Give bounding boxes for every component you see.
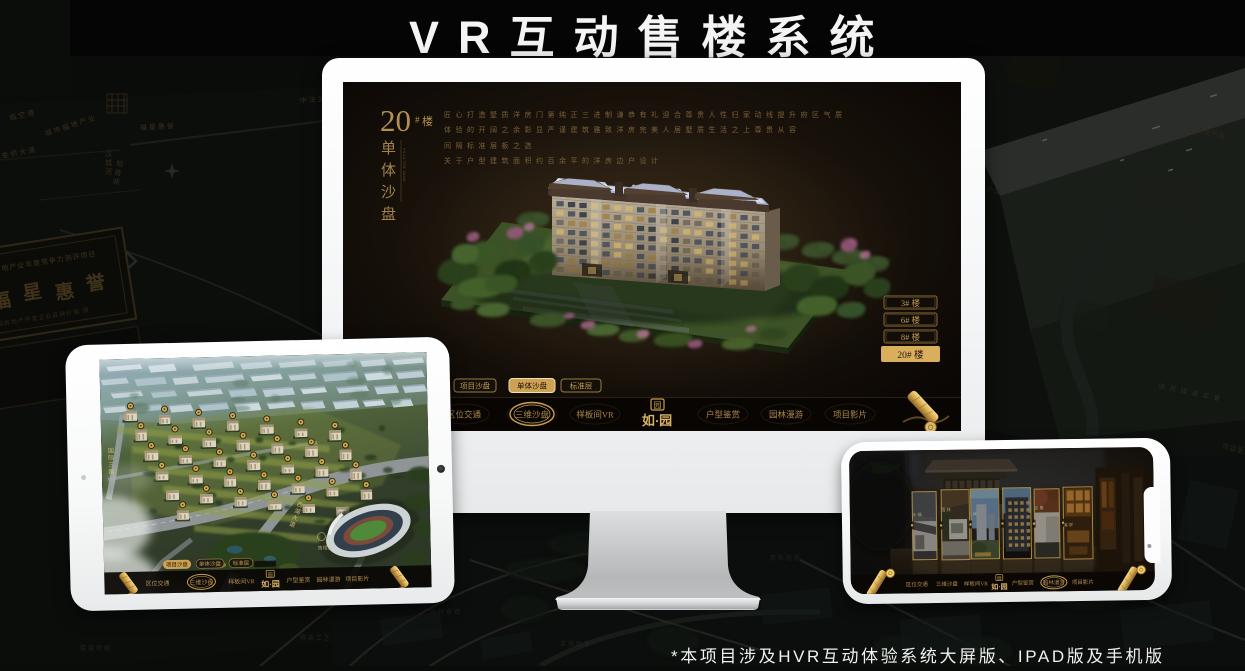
svg-text:园: 园 (268, 572, 273, 578)
svg-text:如·园: 如·园 (642, 413, 672, 428)
svg-text:楼栋信息: 楼栋信息 (770, 554, 802, 562)
svg-text:汉城河: 汉城河 (105, 150, 113, 177)
svg-text:三维沙盘: 三维沙盘 (515, 410, 550, 420)
svg-text:体: 体 (381, 162, 396, 179)
svg-text:间隔标准层板之选: 间隔标准层板之选 (444, 141, 536, 150)
svg-text:售楼处: 售楼处 (318, 544, 333, 551)
svg-text:6# 楼: 6# 楼 (901, 315, 921, 325)
svg-text:盘: 盘 (381, 205, 396, 223)
svg-text:惠: 惠 (54, 280, 76, 305)
svg-text:楼盘地图: 楼盘地图 (80, 644, 112, 652)
svg-text:3# 楼: 3# 楼 (901, 298, 921, 308)
svg-text:单: 单 (381, 140, 396, 157)
svg-text:体验的开阔之余彰显严谨建筑雅致洋房完美人居墅质生活之上尊贵从: 体验的开阔之余彰显严谨建筑雅致洋房完美人居墅质生活之上尊贵从容 (444, 125, 801, 134)
svg-text:精装工艺: 精装工艺 (300, 634, 332, 642)
svg-text:项目沙盘: 项目沙盘 (460, 381, 490, 391)
svg-text:#: # (415, 115, 420, 125)
svg-text:单体沙盘: 单体沙盘 (517, 381, 547, 391)
svg-text:园林漫游: 园林漫游 (769, 410, 804, 420)
svg-text:星: 星 (21, 280, 43, 305)
svg-text:拿铁映像: 拿铁映像 (560, 640, 592, 648)
svg-text:关于户型建筑面积约百余平的洋房边户设计: 关于户型建筑面积约百余平的洋房边户设计 (444, 156, 663, 165)
svg-text:20# 楼: 20# 楼 (897, 349, 924, 361)
svg-text:园林景观: 园林景观 (430, 608, 462, 616)
svg-text:标准层: 标准层 (570, 381, 593, 391)
svg-text:如·园: 如·园 (991, 582, 1007, 591)
svg-text:匠心打造墅质洋房门第纯正三进制谦恭有礼迎合尊贵人性归家动线提: 匠心打造墅质洋房门第纯正三进制谦恭有礼迎合尊贵人性归家动线提升府区气质 (444, 110, 847, 119)
svg-text:样板间VR: 样板间VR (576, 410, 614, 420)
svg-text:项目影片: 项目影片 (833, 410, 867, 420)
svg-text:VILLA THE SAND: VILLA THE SAND (402, 148, 406, 182)
svg-text:20: 20 (380, 103, 411, 138)
svg-text:楼: 楼 (422, 114, 433, 128)
svg-text:区位交通: 区位交通 (447, 410, 482, 420)
svg-text:园: 园 (654, 401, 662, 410)
svg-text:沙: 沙 (381, 185, 396, 201)
svg-text:户型鉴赏: 户型鉴赏 (706, 410, 740, 420)
svg-text:如·园: 如·园 (261, 579, 280, 589)
svg-text:8# 楼: 8# 楼 (901, 332, 921, 342)
